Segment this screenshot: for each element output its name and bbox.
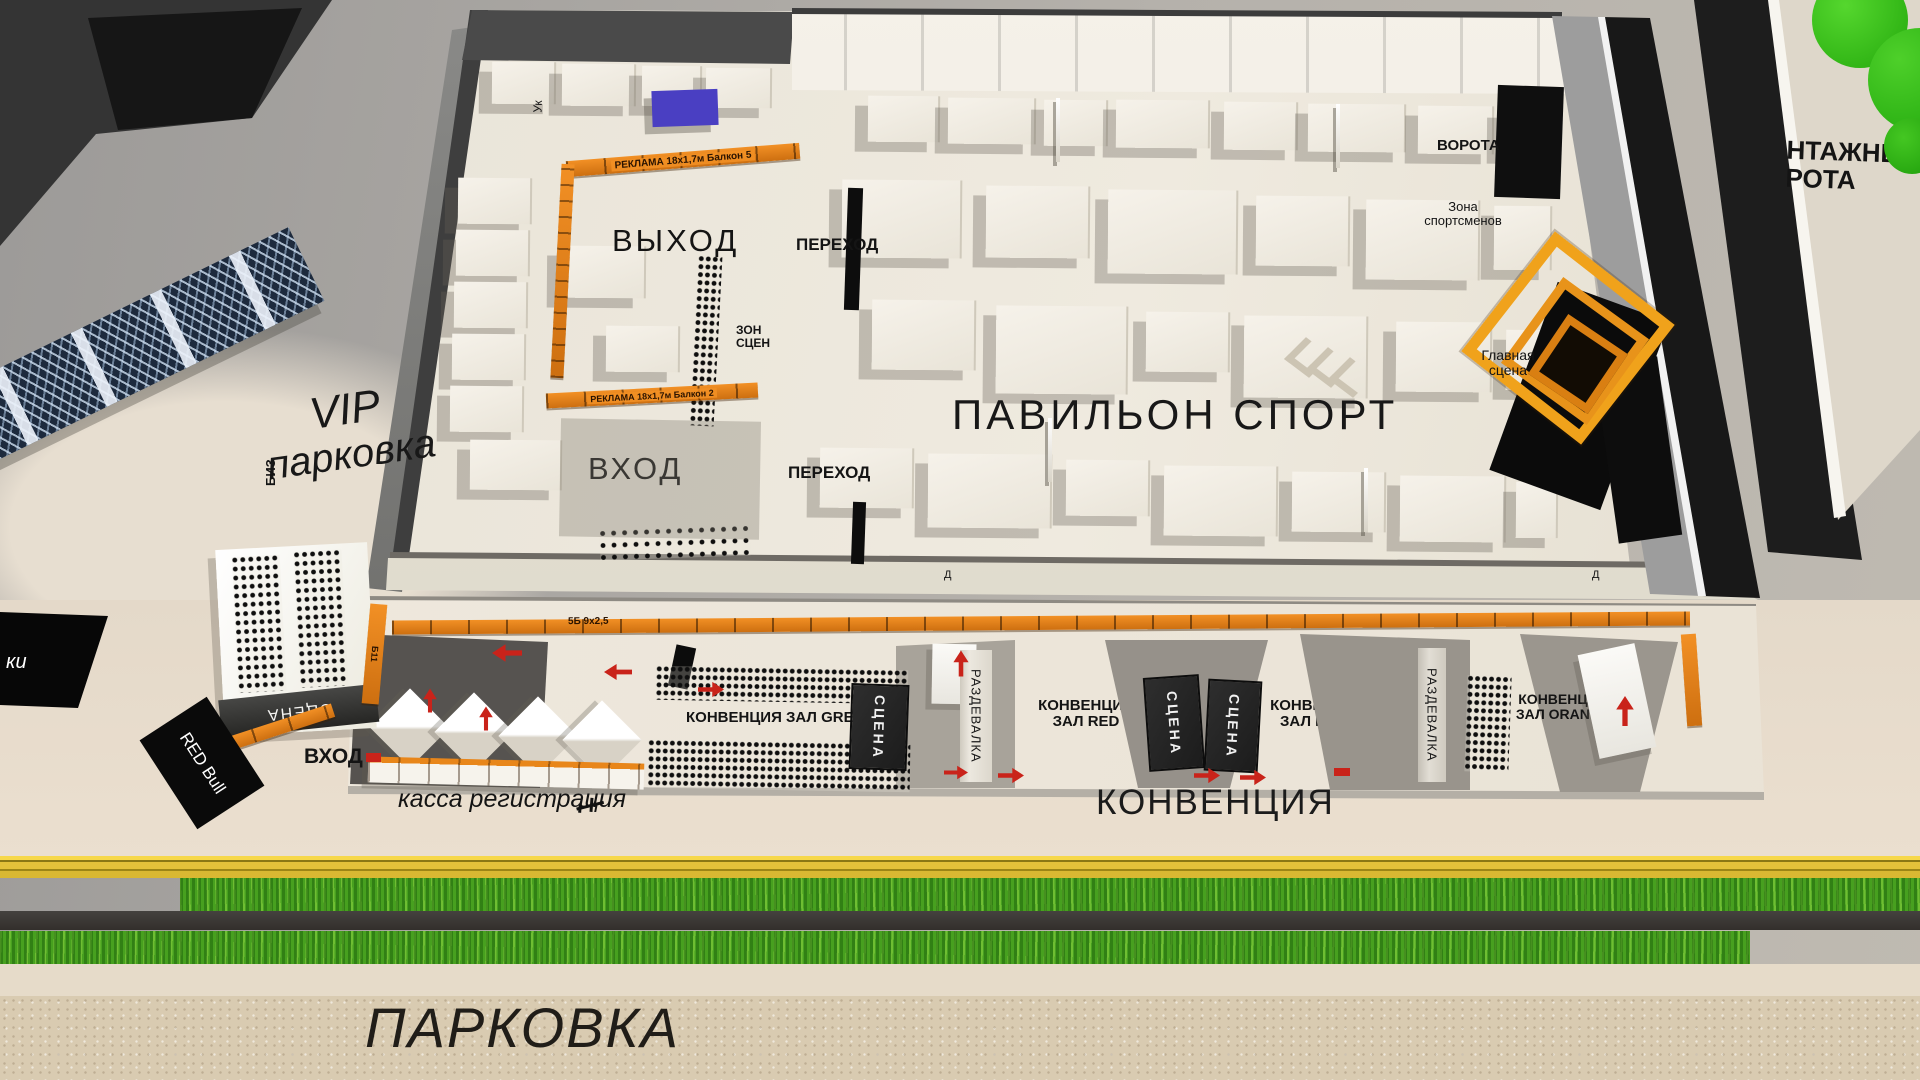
grass-strip-top <box>180 878 1920 912</box>
stage-zone-small-label: ЗОН СЦЕН <box>736 324 770 350</box>
main-stage-label: Главная сцена <box>1468 348 1548 378</box>
pole-mast <box>1336 104 1340 168</box>
venue-map-scene: ПАРКОВКА НТАЖНЫЕ РОТА ПАВИЛЬОН СПОРТ ПЕР… <box>0 0 1920 1080</box>
stage-box-green: СЦЕНА <box>849 683 910 771</box>
booth-box <box>868 96 940 143</box>
booth-box <box>1224 102 1298 151</box>
pavilion-title: ПАВИЛЬОН СПОРТ <box>952 392 1398 437</box>
pole-mast <box>1056 98 1060 162</box>
booth-box <box>948 98 1036 145</box>
ground-parking <box>0 996 1920 1080</box>
black-slit <box>851 502 866 564</box>
banner-5b-label: 5Б 9х2,5 <box>568 617 609 628</box>
red-marker <box>366 753 381 762</box>
outdoor-stage-tent: СЦЕНА <box>215 542 377 736</box>
booth-box <box>996 305 1129 394</box>
stage-box-red-b: СЦЕНА <box>1204 679 1263 774</box>
booth-box <box>1066 460 1150 517</box>
locker-room-2: РАЗДЕВАЛКА <box>1418 648 1446 782</box>
booth-box <box>1146 312 1231 373</box>
pole-mast <box>1364 468 1368 532</box>
booth-box <box>1308 104 1406 153</box>
seating-block <box>1464 675 1511 772</box>
booth-box <box>872 300 977 371</box>
booth-box <box>492 62 556 105</box>
decor-blue-box <box>651 89 718 127</box>
booth-box <box>454 282 528 329</box>
hall-green-label: КОНВЕНЦИЯ ЗАЛ GREEN <box>686 710 874 726</box>
red-bull-label: RED Bull <box>175 729 229 798</box>
exit-label: ВЫХОД <box>612 224 739 257</box>
booth-box <box>1108 189 1239 274</box>
booth-box <box>1116 100 1210 149</box>
main-stage-line2: сцена <box>1468 363 1548 378</box>
booth-box <box>928 453 1053 528</box>
road-rail-yellow <box>0 856 1920 878</box>
banner-b11-label: Б11 <box>369 646 380 663</box>
entrance-outside-label: ВХОД <box>304 746 363 769</box>
stage-zone-line1: ЗОН <box>736 324 770 337</box>
gates-label: ВОРОТА <box>1437 138 1500 154</box>
convention-big-label: КОНВЕНЦИЯ <box>1096 784 1335 822</box>
door-label: Д <box>944 570 951 582</box>
booth-box <box>606 326 680 373</box>
road-dark-band <box>0 911 1920 930</box>
gates-black <box>1494 85 1564 199</box>
athletes-zone-line1: Зона <box>1408 200 1518 214</box>
locker-room-1: РАЗДЕВАЛКА <box>960 650 992 782</box>
passage-upper-label: ПЕРЕХОД <box>796 236 878 254</box>
locker-room-1-label: РАЗДЕВАЛКА <box>969 669 984 763</box>
banner-black-left-text: ки <box>6 652 27 674</box>
booth-box <box>1256 196 1351 267</box>
seating-block <box>232 555 287 693</box>
pole-mast <box>1048 418 1052 482</box>
stage-box-red-a: СЦЕНА <box>1143 674 1205 772</box>
parking-label: ПАРКОВКА <box>365 998 680 1058</box>
booth-box <box>562 64 636 107</box>
red-marker <box>1334 768 1350 776</box>
booth-box <box>456 230 530 277</box>
grass-strip-bottom <box>0 931 1750 964</box>
passage-lower-label: ПЕРЕХОД <box>788 464 870 482</box>
stage-box-green-label: СЦЕНА <box>870 694 888 759</box>
seating-block <box>293 550 348 688</box>
main-stage-line1: Главная <box>1468 348 1548 363</box>
door-label: Д <box>1592 570 1599 582</box>
booth-box <box>1292 472 1387 533</box>
booth-box <box>1400 476 1507 543</box>
booth-box <box>458 178 532 225</box>
stage-zone-line2: СЦЕН <box>736 337 770 350</box>
stage-box-red-b-label: СЦЕНА <box>1223 693 1242 759</box>
sidewalk <box>0 964 1920 996</box>
uk-small-label: Ук <box>531 100 544 113</box>
booth-box <box>1164 466 1279 537</box>
locker-room-2-label: РАЗДЕВАЛКА <box>1425 668 1440 762</box>
athletes-zone-line2: спортсменов <box>1408 214 1518 228</box>
booth-box <box>986 186 1091 259</box>
athletes-zone-label: Зона спортсменов <box>1408 200 1518 228</box>
biz-label: БИЗ <box>264 459 278 486</box>
booth-box <box>1044 100 1108 147</box>
stage-box-red-a-label: СЦЕНА <box>1164 690 1184 756</box>
hall-floor-shade <box>559 418 761 539</box>
